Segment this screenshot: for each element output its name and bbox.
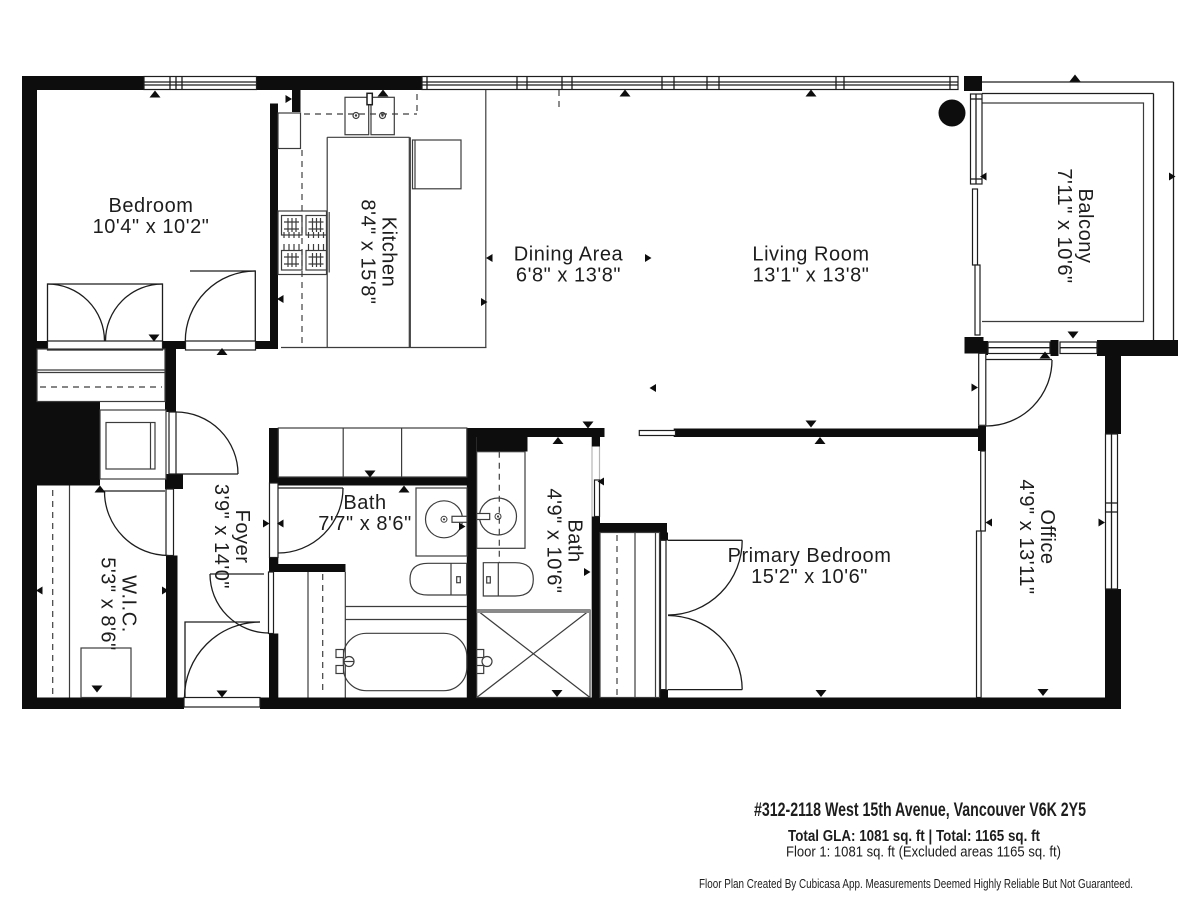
svg-text:4'9" x 13'11": 4'9" x 13'11" <box>1015 479 1037 594</box>
svg-text:Kitchen: Kitchen <box>378 217 400 288</box>
svg-text:Floor Plan Created By Cubicasa: Floor Plan Created By Cubicasa App. Meas… <box>699 876 1133 891</box>
svg-text:Living Room: Living Room <box>752 244 869 266</box>
svg-text:Total GLA: 1081 sq. ft | Total: Total GLA: 1081 sq. ft | Total: 1165 sq.… <box>788 828 1040 845</box>
svg-text:7'7" x 8'6": 7'7" x 8'6" <box>318 513 412 535</box>
svg-text:Foyer: Foyer <box>231 510 253 564</box>
svg-text:6'8" x 13'8": 6'8" x 13'8" <box>516 265 621 287</box>
svg-text:Floor 1: 1081 sq. ft (Excluded: Floor 1: 1081 sq. ft (Excluded areas 116… <box>786 844 1061 861</box>
svg-text:Bath: Bath <box>343 492 386 514</box>
svg-text:15'2" x 10'6": 15'2" x 10'6" <box>751 566 868 588</box>
svg-text:Dining Area: Dining Area <box>514 244 624 266</box>
svg-text:Bath: Bath <box>563 519 585 562</box>
svg-text:Office: Office <box>1036 509 1058 564</box>
svg-text:10'4" x 10'2": 10'4" x 10'2" <box>93 216 210 238</box>
svg-text:#312-2118 West 15th Avenue, Va: #312-2118 West 15th Avenue, Vancouver V6… <box>754 800 1086 821</box>
svg-text:3'9" x 14'0": 3'9" x 14'0" <box>210 484 232 589</box>
svg-text:Bedroom: Bedroom <box>108 195 193 217</box>
svg-text:Balcony: Balcony <box>1074 188 1096 263</box>
svg-text:W.I.C.: W.I.C. <box>117 575 139 633</box>
svg-text:13'1" x 13'8": 13'1" x 13'8" <box>753 265 870 287</box>
svg-text:8'4" x 15'8": 8'4" x 15'8" <box>357 199 379 304</box>
svg-text:Primary Bedroom: Primary Bedroom <box>728 545 892 567</box>
svg-text:5'3" x 8'6": 5'3" x 8'6" <box>96 557 118 651</box>
svg-text:7'11" x 10'6": 7'11" x 10'6" <box>1053 168 1075 283</box>
svg-text:4'9" x 10'6": 4'9" x 10'6" <box>542 488 564 593</box>
